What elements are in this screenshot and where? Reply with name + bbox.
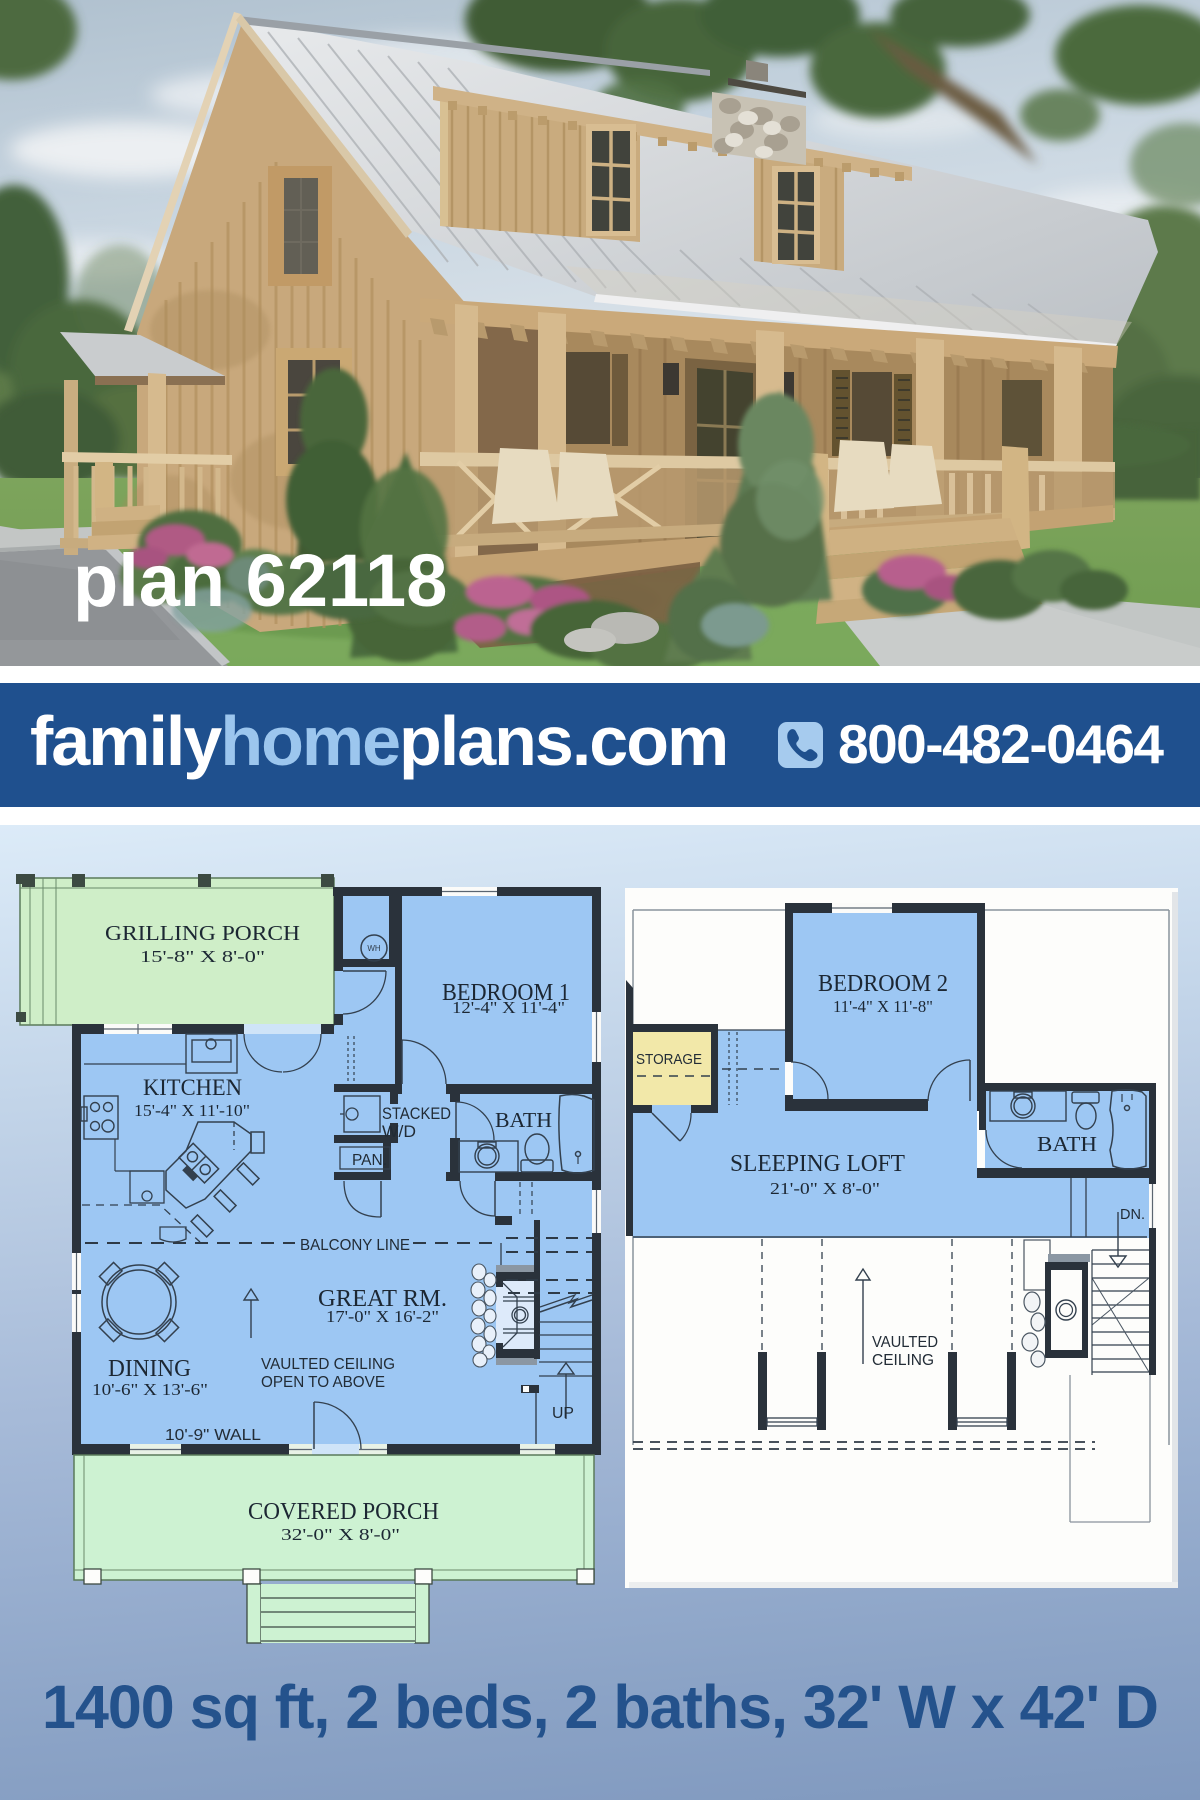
svg-text:11'-4" X 11'-8": 11'-4" X 11'-8" bbox=[833, 997, 933, 1016]
svg-text:GRILLING PORCH: GRILLING PORCH bbox=[105, 921, 300, 945]
svg-text:STACKED: STACKED bbox=[382, 1104, 451, 1123]
svg-text:VAULTED CEILING: VAULTED CEILING bbox=[261, 1356, 395, 1373]
svg-text:W/D: W/D bbox=[382, 1122, 416, 1141]
svg-text:CEILING: CEILING bbox=[872, 1352, 934, 1369]
svg-text:PAN.: PAN. bbox=[352, 1152, 387, 1169]
svg-text:WH: WH bbox=[367, 944, 381, 953]
svg-text:UP: UP bbox=[552, 1405, 574, 1422]
svg-text:BEDROOM 2: BEDROOM 2 bbox=[818, 971, 948, 997]
svg-text:15'-4" X 11'-10": 15'-4" X 11'-10" bbox=[134, 1101, 250, 1120]
svg-text:DINING: DINING bbox=[108, 1356, 191, 1382]
svg-text:15'-8" X 8'-0": 15'-8" X 8'-0" bbox=[140, 947, 265, 966]
svg-text:OPEN TO ABOVE: OPEN TO ABOVE bbox=[261, 1374, 385, 1391]
svg-text:10'-6" X 13'-6": 10'-6" X 13'-6" bbox=[92, 1380, 208, 1399]
svg-text:VAULTED: VAULTED bbox=[872, 1334, 938, 1351]
svg-text:21'-0" X 8'-0": 21'-0" X 8'-0" bbox=[770, 1179, 880, 1198]
svg-text:SLEEPING LOFT: SLEEPING LOFT bbox=[730, 1151, 905, 1177]
svg-text:COVERED PORCH: COVERED PORCH bbox=[248, 1499, 439, 1525]
svg-text:KITCHEN: KITCHEN bbox=[143, 1075, 242, 1100]
svg-text:BATH: BATH bbox=[495, 1108, 552, 1132]
svg-text:12'-4" X 11'-4": 12'-4" X 11'-4" bbox=[452, 998, 565, 1017]
svg-text:BALCONY LINE: BALCONY LINE bbox=[300, 1237, 410, 1254]
svg-text:BATH: BATH bbox=[1037, 1132, 1097, 1156]
svg-text:32'-0" X 8'-0": 32'-0" X 8'-0" bbox=[281, 1525, 400, 1544]
svg-text:10'-9" WALL: 10'-9" WALL bbox=[165, 1427, 261, 1444]
svg-text:DN.: DN. bbox=[1120, 1206, 1145, 1223]
svg-text:STORAGE: STORAGE bbox=[636, 1051, 702, 1068]
svg-text:17'-0" X 16'-2": 17'-0" X 16'-2" bbox=[326, 1307, 439, 1326]
